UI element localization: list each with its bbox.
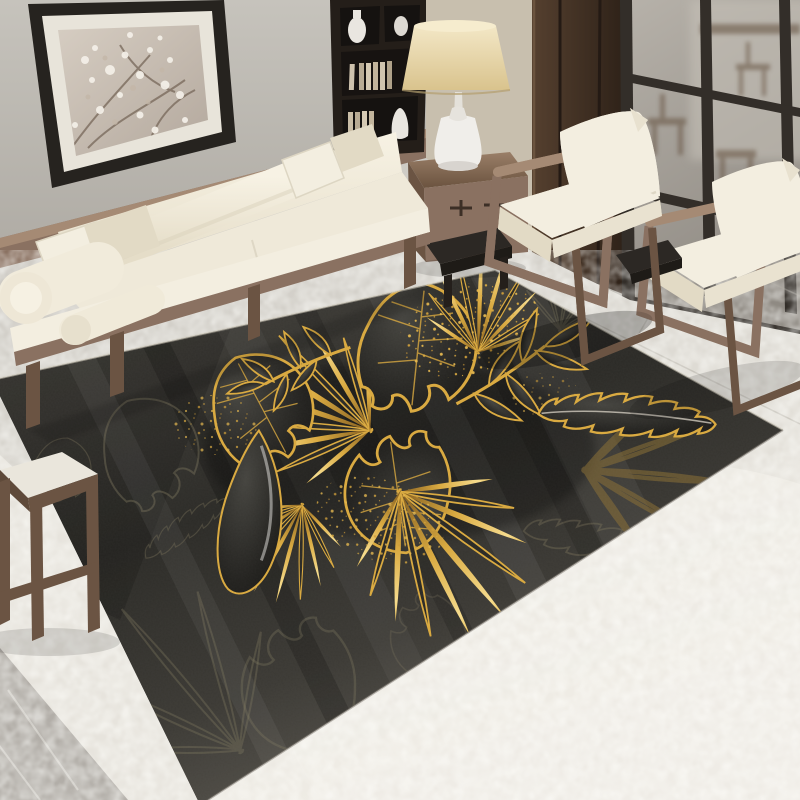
scene-canvas: textured gray wall wood console behind s… xyxy=(0,0,800,800)
living-room-photo: Modern living room lifestyle photo: blac… xyxy=(0,0,800,800)
lamp-shade xyxy=(402,26,510,90)
